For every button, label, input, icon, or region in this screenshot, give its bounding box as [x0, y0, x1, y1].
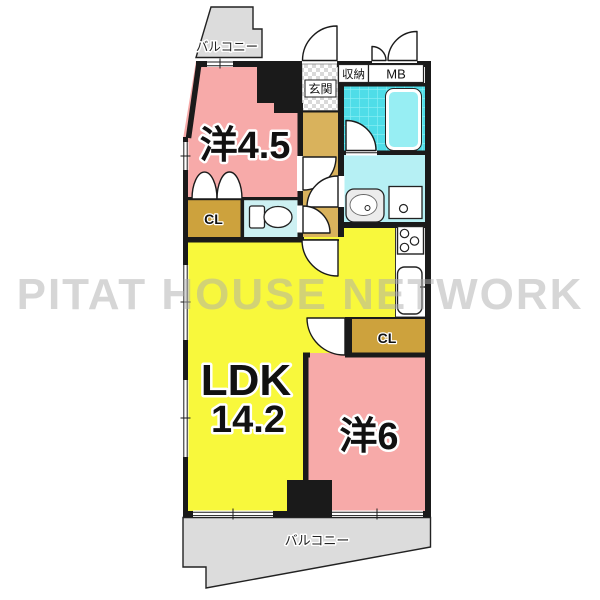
closet1-label: CL [204, 211, 223, 227]
stove-icon [398, 227, 424, 255]
room-label-ldk-area: 14.2 [211, 399, 285, 441]
bathtub-icon [386, 89, 422, 151]
closet2-label: CL [378, 330, 397, 346]
room-label-ldk: LDK [201, 356, 292, 405]
window [207, 59, 233, 69]
meter-box-door-arc [372, 47, 386, 61]
entrance-label: 玄関 [308, 81, 332, 96]
washbasin-icon [346, 189, 384, 222]
floor-plan-page: 洋4.5 LDK 14.2 洋6 CL CL 玄関 収納 MB バルコニー バル… [0, 0, 600, 600]
toilet-icon [250, 206, 293, 228]
storage-label: 収納 [342, 68, 365, 81]
floor-plan-image: 洋4.5 LDK 14.2 洋6 CL CL 玄関 収納 MB バルコニー バル… [0, 0, 600, 600]
meter-box-label: MB [386, 67, 406, 82]
entrance-door-arc [303, 26, 338, 61]
room-label-western6: 洋6 [339, 416, 398, 458]
balcony-bottom-label: バルコニー [285, 533, 350, 548]
balcony-bottom [183, 518, 431, 589]
balcony-top-label: バルコニー [196, 40, 258, 54]
meter-box-door-arc [388, 32, 417, 61]
washing-machine-icon [389, 187, 422, 219]
watermark: PITAT HOUSE NETWORK [17, 270, 584, 319]
room-label-western45: 洋4.5 [200, 125, 291, 167]
